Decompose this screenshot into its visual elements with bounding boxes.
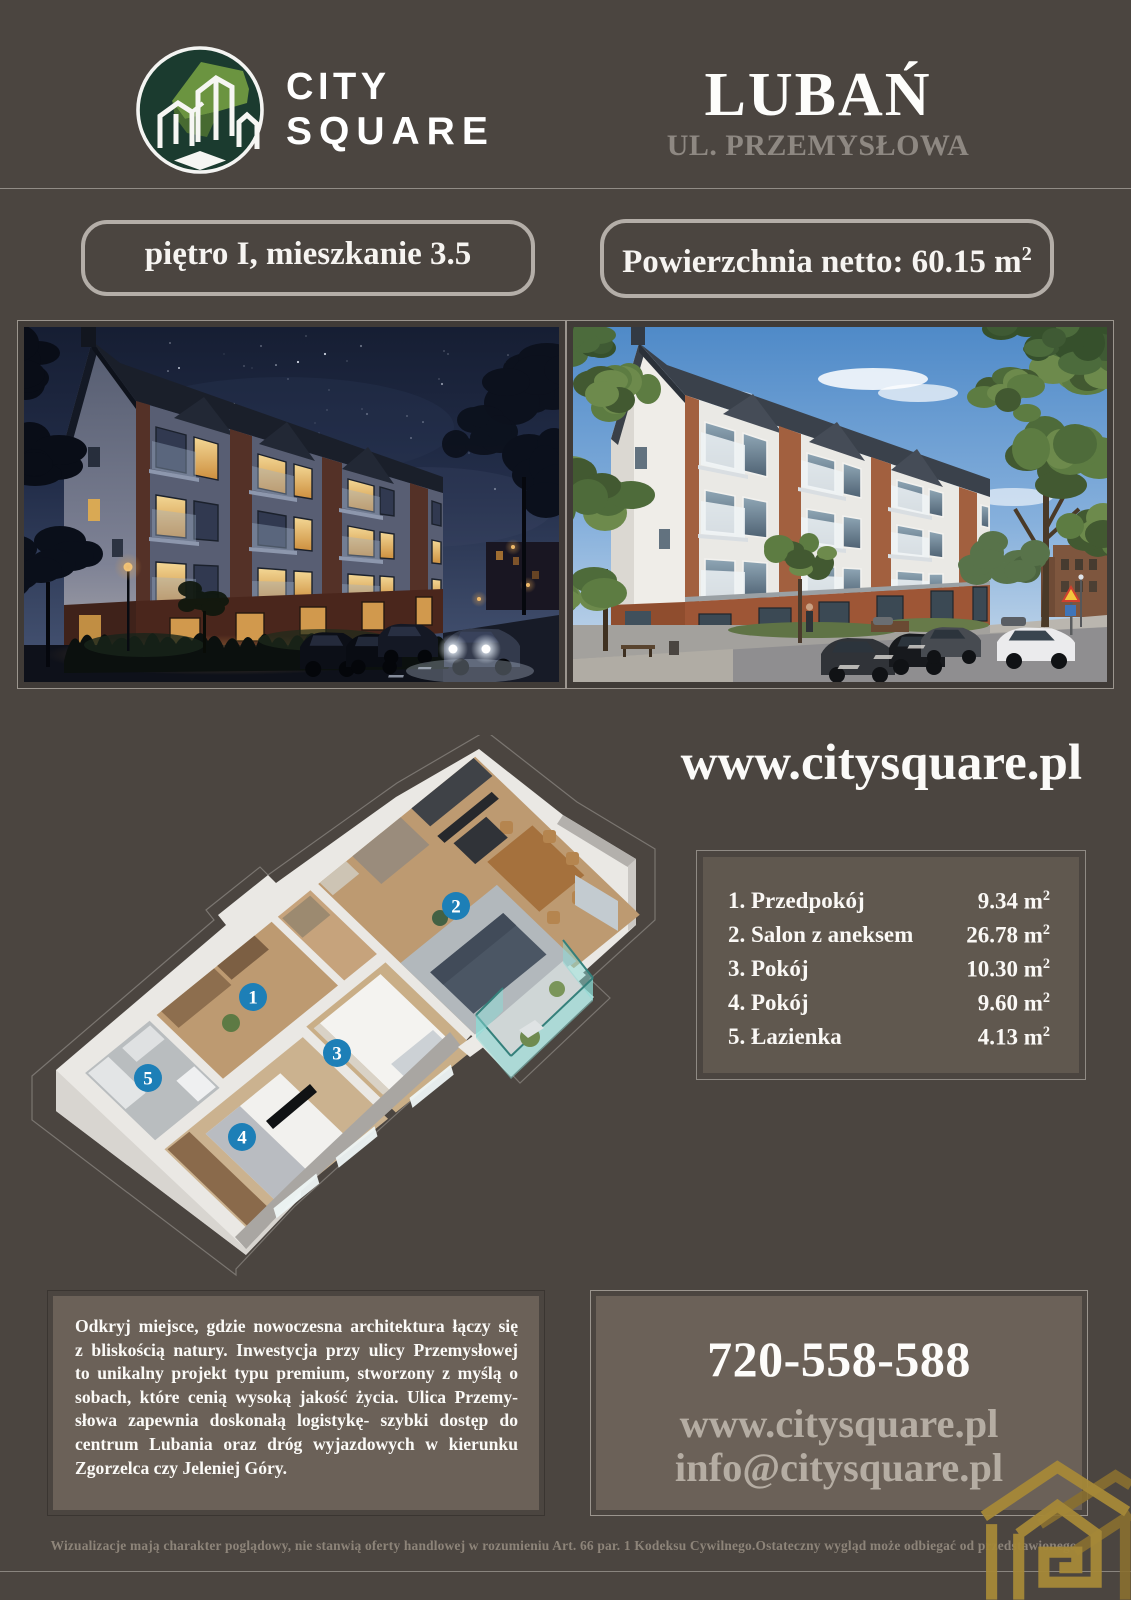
- svg-text:5: 5: [143, 1069, 153, 1090]
- svg-text:2: 2: [451, 897, 461, 918]
- svg-text:4: 4: [237, 1128, 247, 1149]
- svg-text:3: 3: [332, 1044, 342, 1065]
- svg-text:1: 1: [248, 988, 258, 1009]
